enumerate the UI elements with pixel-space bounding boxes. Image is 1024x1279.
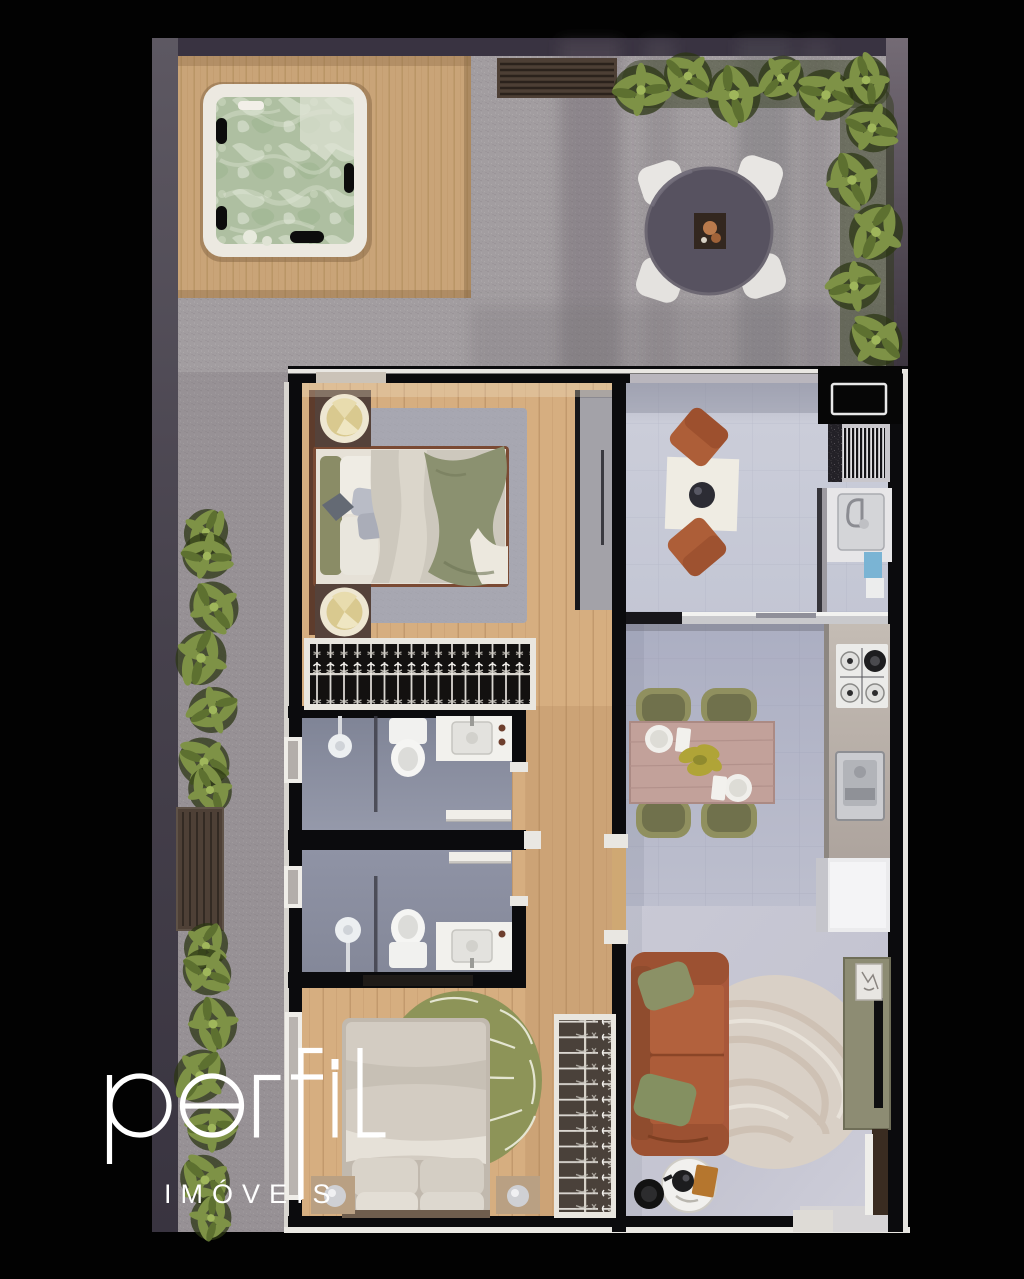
svg-text:IMÓVEIS: IMÓVEIS [164,1178,340,1209]
